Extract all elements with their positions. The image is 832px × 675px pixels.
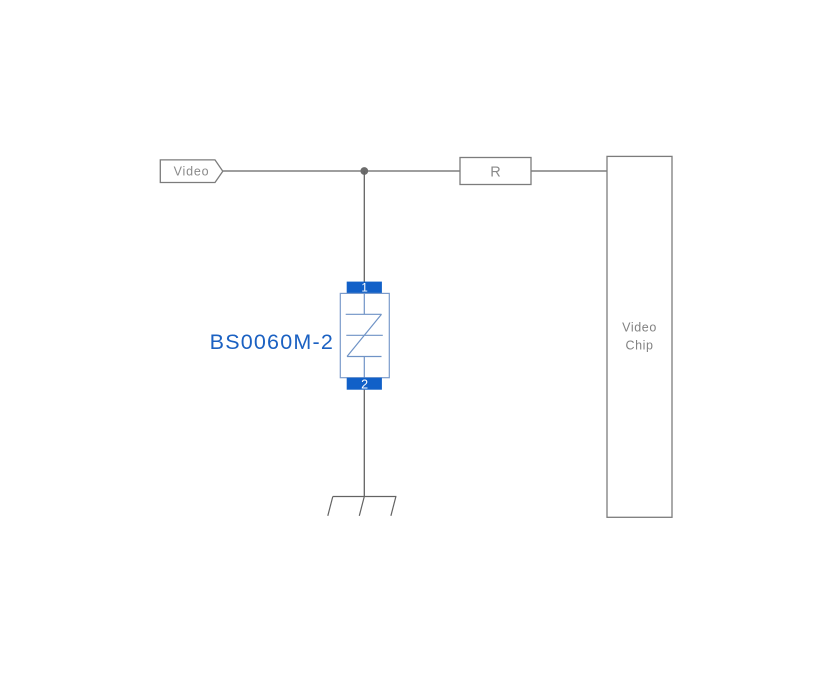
svg-text:BS0060M-2: BS0060M-2 — [210, 330, 334, 354]
svg-text:Chip: Chip — [625, 338, 653, 352]
svg-text:Video: Video — [622, 320, 657, 334]
svg-text:R: R — [490, 164, 500, 180]
svg-text:Video: Video — [174, 165, 210, 179]
svg-text:2: 2 — [361, 378, 368, 392]
